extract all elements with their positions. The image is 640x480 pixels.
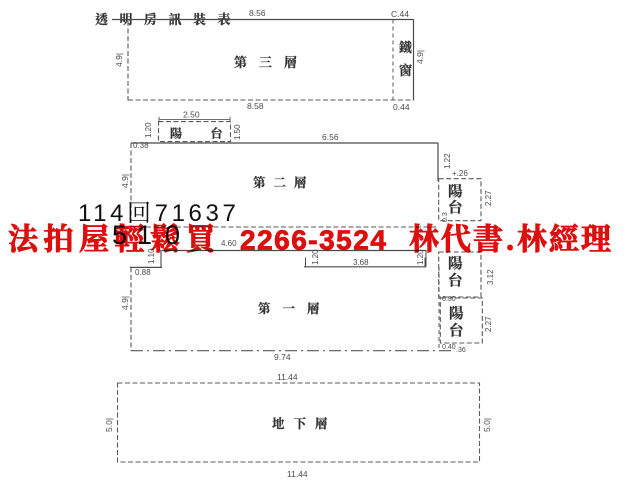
- svg-text:C.44: C.44: [391, 9, 409, 19]
- svg-text:窗: 窗: [399, 60, 412, 79]
- svg-text:0.88: 0.88: [135, 268, 151, 277]
- svg-text:地下層: 地下層: [272, 414, 337, 432]
- svg-text:5.0|: 5.0|: [482, 418, 492, 432]
- svg-text:5.0|: 5.0|: [104, 418, 114, 432]
- svg-text:台: 台: [448, 270, 463, 291]
- svg-text:8.58: 8.58: [247, 101, 264, 111]
- svg-text:2.50: 2.50: [183, 110, 200, 120]
- svg-text:鐵: 鐵: [399, 37, 412, 56]
- svg-text:0.38: 0.38: [133, 141, 149, 150]
- svg-text:第三層: 第三層: [234, 52, 309, 71]
- svg-text:林代書.林經理: 林代書.林經理: [409, 215, 613, 259]
- svg-text:+.26: +.26: [452, 169, 468, 178]
- svg-text:4.9|: 4.9|: [120, 174, 130, 188]
- svg-text:4.9|: 4.9|: [120, 296, 130, 310]
- svg-text:2.27: 2.27: [484, 316, 493, 332]
- svg-text:2.27: 2.27: [484, 190, 493, 206]
- svg-text:4.9|: 4.9|: [114, 53, 124, 67]
- svg-text:8.56: 8.56: [249, 8, 266, 18]
- svg-text:透明房訊裝表: 透明房訊裝表: [95, 9, 242, 28]
- svg-text:3.68: 3.68: [353, 258, 369, 267]
- svg-text:.36: .36: [456, 347, 466, 354]
- svg-text:4.60: 4.60: [221, 239, 237, 248]
- svg-text:3.12: 3.12: [486, 269, 495, 285]
- svg-text:0.40: 0.40: [442, 344, 456, 351]
- svg-text:1.20: 1.20: [144, 122, 153, 138]
- svg-text:1.22: 1.22: [443, 153, 452, 169]
- svg-text:6.56: 6.56: [322, 132, 339, 142]
- svg-text:第二層: 第二層: [253, 173, 315, 191]
- svg-text:11.44: 11.44: [287, 469, 308, 479]
- svg-text:台: 台: [449, 320, 464, 341]
- svg-text:9.74: 9.74: [274, 352, 291, 362]
- svg-text:第一層: 第一層: [258, 299, 332, 317]
- svg-text:0.44: 0.44: [393, 102, 410, 112]
- svg-text:2266-3524: 2266-3524: [240, 225, 387, 256]
- svg-text:法拍屋輕鬆買: 法拍屋輕鬆買: [8, 215, 221, 259]
- svg-text:4.9|: 4.9|: [415, 50, 425, 64]
- svg-text:11.44: 11.44: [277, 372, 298, 382]
- svg-text:1.50: 1.50: [233, 124, 242, 140]
